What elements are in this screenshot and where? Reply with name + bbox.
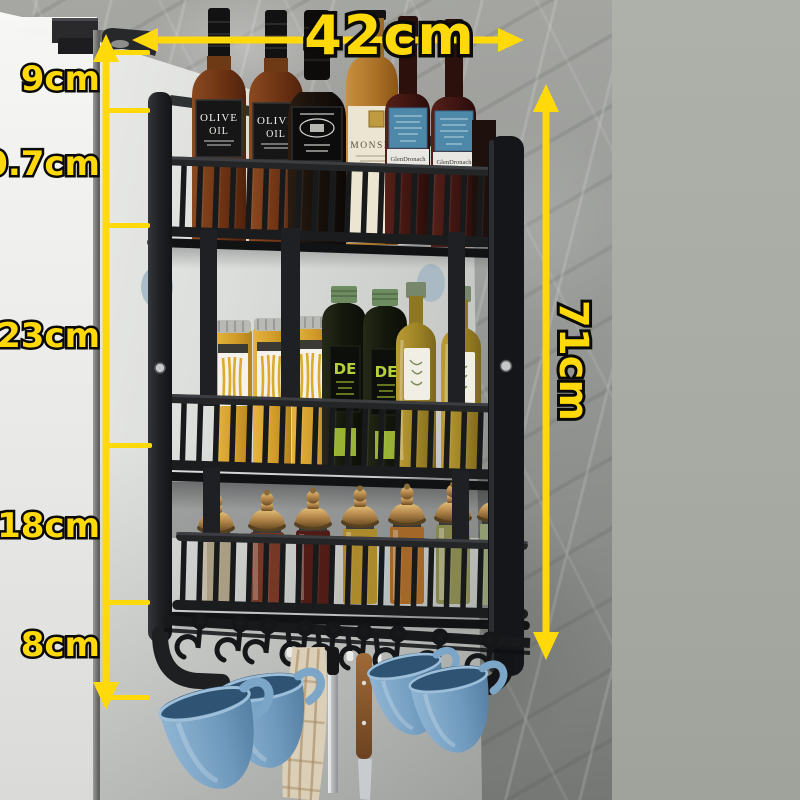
- arrowhead-left: [132, 28, 158, 52]
- dimension-segment-1: 9cm: [21, 57, 100, 103]
- dimension-arrows: [0, 0, 800, 800]
- arrowhead-up: [533, 84, 559, 112]
- left-height-line: [103, 56, 110, 688]
- product-photo: OLIVE OIL OLIVE OIL: [0, 0, 800, 800]
- dimension-top-width: 42cm: [250, 0, 530, 73]
- dimension-segment-5: 8cm: [21, 623, 100, 669]
- dimension-segment-4: 18cm: [0, 504, 100, 550]
- dimension-segment-3: 23cm: [0, 314, 100, 360]
- dimension-segment-2: 10.7cm: [0, 142, 100, 188]
- dimension-total-height: 71cm: [546, 300, 600, 421]
- arrowhead-down: [533, 632, 559, 660]
